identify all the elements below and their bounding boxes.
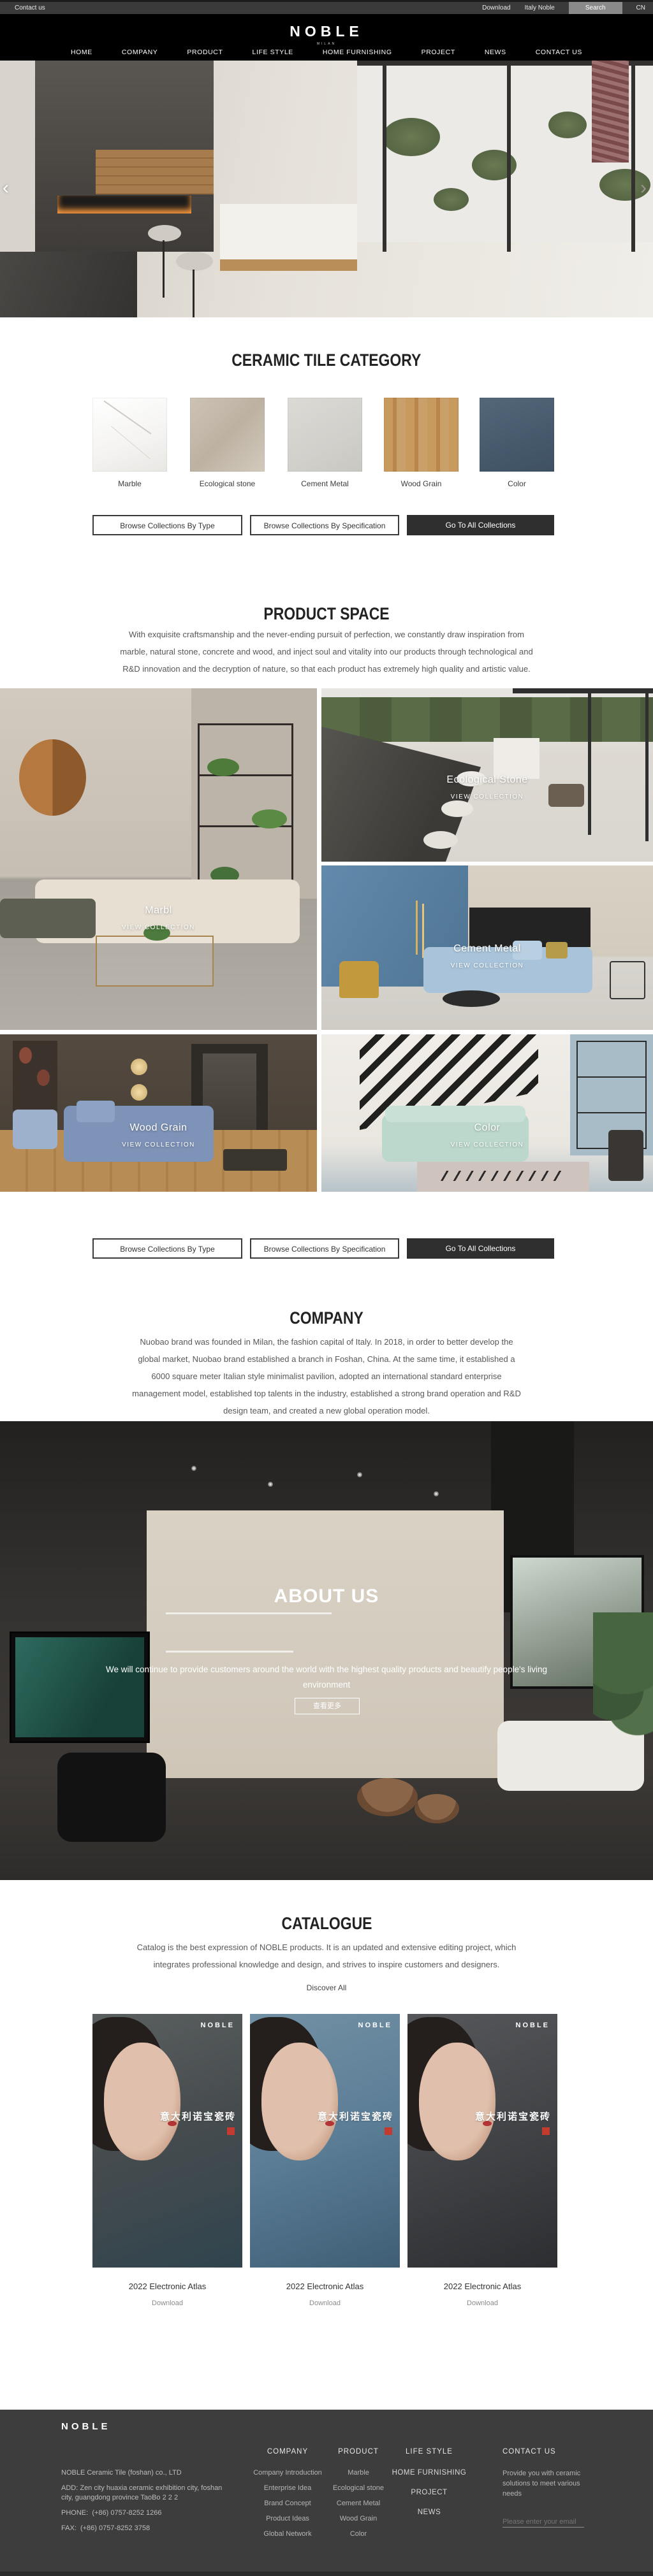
poster-seal (542, 2127, 550, 2135)
search-button[interactable]: Search (569, 2, 622, 14)
category-section-title: CERAMIC TILE CATEGORY (0, 351, 653, 370)
footer-link-company-introduction[interactable]: Company Introduction (246, 2468, 329, 2478)
carousel-prev-arrow[interactable]: ‹ (3, 178, 9, 198)
category-swatch-ecological-stone[interactable] (190, 398, 265, 472)
download-link[interactable]: Download (482, 4, 510, 11)
hero-carousel: ‹ › (0, 61, 653, 317)
browse-by-type-button[interactable]: Browse Collections By Type (92, 515, 242, 535)
category-swatch-wood-grain[interactable] (384, 398, 459, 472)
discover-all-link[interactable]: Discover All (0, 1983, 653, 1992)
footer-link-brand-concept[interactable]: Brand Concept (246, 2499, 329, 2508)
category-swatch-marble[interactable] (92, 398, 167, 472)
category-label-marble: Marble (92, 479, 167, 488)
about-scene-shelf (166, 1651, 293, 1653)
top-utility-bar: Contact us Download Italy Noble Search C… (0, 0, 653, 14)
atlas-title-2: 2022 Electronic Atlas (250, 2282, 400, 2291)
tile-ecological-stone-view-collection[interactable]: VIEW COLLECTION (321, 793, 653, 800)
page: Contact us Download Italy Noble Search C… (0, 0, 653, 2576)
contact-us-link[interactable]: Contact us (15, 4, 45, 11)
footer-link-global-network[interactable]: Global Network (246, 2529, 329, 2539)
hero-scene-counter (0, 252, 137, 317)
site-header: NOBLE MILAN HOME COMPANY PRODUCT LIFE ST… (0, 14, 653, 61)
atlas-title-1: 2022 Electronic Atlas (92, 2282, 242, 2291)
hero-window-mullion (383, 61, 386, 252)
hero-scene-island (220, 204, 357, 271)
tile-color[interactable]: Color VIEW COLLECTION (321, 1034, 653, 1192)
tile-marble-view-collection[interactable]: VIEW COLLECTION (0, 924, 317, 931)
poster-title: 意大利诺宝瓷砖 (475, 2109, 551, 2123)
about-us-section: ABOUT US We will continue to provide cus… (0, 1421, 653, 1880)
footer-address-label: ADD: (61, 2484, 78, 2492)
footer-phone-label: PHONE: (61, 2509, 88, 2517)
footer-company-links: Company Introduction Enterprise Idea Bra… (246, 2468, 329, 2545)
footer-heading-life-style[interactable]: LIFE STYLE (390, 2448, 468, 2456)
browse-by-type-button-2[interactable]: Browse Collections By Type (92, 1238, 242, 1259)
catalogue-paragraph: Catalog is the best expression of NOBLE … (122, 1939, 531, 1973)
tile-ecological-stone[interactable]: Ecological Stone VIEW COLLECTION (321, 688, 653, 862)
footer-link-color[interactable]: Color (319, 2529, 398, 2539)
hero-scene-stool-leg (163, 240, 165, 298)
category-label-color: Color (480, 479, 554, 488)
nav-life-style[interactable]: LIFE STYLE (253, 48, 293, 56)
poster-title: 意大利诺宝瓷砖 (160, 2109, 236, 2123)
tile-color-view-collection[interactable]: VIEW COLLECTION (321, 1141, 653, 1148)
company-paragraph: Nuobao brand was founded in Milan, the f… (129, 1333, 524, 1419)
hero-scene-stool (148, 225, 181, 242)
catalogue-poster-1[interactable]: NOBLE 意大利诺宝瓷砖 (92, 2014, 242, 2268)
nav-news[interactable]: NEWS (485, 48, 506, 56)
footer-phone: (+86) 0757-8252 1266 (92, 2509, 161, 2517)
footer-contact-block: Provide you with ceramic solutions to me… (503, 2468, 592, 2528)
tile-ecological-stone-name: Ecological Stone (321, 774, 653, 786)
hero-scene-wall (0, 61, 35, 277)
category-label-wood-grain: Wood Grain (384, 479, 459, 488)
nav-contact-us[interactable]: CONTACT US (536, 48, 582, 56)
product-space-title: PRODUCT SPACE (0, 604, 653, 624)
footer-bottom-strip (0, 2572, 653, 2576)
footer-link-product-ideas[interactable]: Product Ideas (246, 2514, 329, 2524)
footer-link-home-furnishing[interactable]: HOME FURNISHING (385, 2468, 473, 2478)
about-scene-table (415, 1794, 459, 1823)
footer-lifestyle-links: HOME FURNISHING PROJECT NEWS (385, 2468, 473, 2528)
atlas-title-3: 2022 Electronic Atlas (407, 2282, 557, 2291)
carousel-next-arrow[interactable]: › (640, 178, 647, 198)
brand-logo-subtitle: MILAN (0, 42, 653, 46)
catalogue-poster-2[interactable]: NOBLE 意大利诺宝瓷砖 (250, 2014, 400, 2268)
hero-scene-textile (592, 61, 629, 163)
about-us-title: ABOUT US (0, 1586, 653, 1607)
footer-link-news[interactable]: NEWS (385, 2508, 473, 2517)
main-nav: HOME COMPANY PRODUCT LIFE STYLE HOME FUR… (0, 48, 653, 56)
go-to-all-collections-button-2[interactable]: Go To All Collections (407, 1238, 554, 1259)
hero-scene-stool-leg (193, 270, 194, 317)
newsletter-email-input[interactable] (503, 2517, 584, 2528)
poster-seal (385, 2127, 392, 2135)
footer-company-name: NOBLE Ceramic Tile (foshan) co., LTD (61, 2468, 230, 2478)
about-scene-chair (57, 1753, 166, 1842)
atlas-download-1[interactable]: Download (92, 2299, 242, 2307)
nav-project[interactable]: PROJECT (422, 48, 455, 56)
footer-heading-product[interactable]: PRODUCT (319, 2448, 398, 2456)
tile-marble-name: Marbl (0, 905, 317, 916)
about-us-paragraph: We will continue to provide customers ar… (103, 1662, 550, 1693)
italy-noble-link[interactable]: Italy Noble (525, 4, 555, 11)
footer-heading-contact-us[interactable]: CONTACT US (503, 2448, 556, 2456)
tile-cement-metal-view-collection[interactable]: VIEW COLLECTION (321, 962, 653, 969)
tile-wood-grain-name: Wood Grain (0, 1122, 317, 1134)
tile-cement-metal-name: Cement Metal (321, 943, 653, 955)
category-swatch-cement-metal[interactable] (288, 398, 362, 472)
about-scene-wall (147, 1510, 504, 1778)
footer-heading-company[interactable]: COMPANY (246, 2448, 329, 2456)
nav-company[interactable]: COMPANY (122, 48, 158, 56)
poster-brand: NOBLE (201, 2022, 235, 2029)
tile-color-name: Color (321, 1122, 653, 1134)
about-scene-shelf (166, 1612, 332, 1614)
hero-scene-stool (176, 252, 213, 271)
atlas-download-3[interactable]: Download (407, 2299, 557, 2307)
about-scene-table (357, 1778, 418, 1816)
about-scene-plant (593, 1612, 653, 1765)
hero-window-mullion (631, 61, 635, 252)
tile-wood-grain-view-collection[interactable]: VIEW COLLECTION (0, 1141, 317, 1148)
catalogue-section-title: CATALOGUE (0, 1914, 653, 1934)
product-space-paragraph: With exquisite craftsmanship and the nev… (116, 626, 537, 677)
browse-by-specification-button-2[interactable]: Browse Collections By Specification (250, 1238, 399, 1259)
tile-cement-metal[interactable]: Cement Metal VIEW COLLECTION (321, 865, 653, 1030)
hero-window-mullion (507, 61, 511, 252)
poster-brand: NOBLE (358, 2022, 393, 2029)
category-label-cement-metal: Cement Metal (288, 479, 362, 488)
browse-by-specification-button[interactable]: Browse Collections By Specification (250, 515, 399, 535)
footer-link-project[interactable]: PROJECT (385, 2488, 473, 2498)
brand-logo[interactable]: NOBLE (0, 23, 653, 40)
poster-title: 意大利诺宝瓷砖 (318, 2109, 393, 2123)
catalogue-poster-3[interactable]: NOBLE 意大利诺宝瓷砖 (407, 2014, 557, 2268)
site-footer: NOBLE COMPANY PRODUCT LIFE STYLE CONTACT… (0, 2410, 653, 2576)
footer-link-enterprise-idea[interactable]: Enterprise Idea (246, 2484, 329, 2493)
about-view-more-button[interactable]: 查看更多 (295, 1698, 360, 1714)
footer-company-info: NOBLE Ceramic Tile (foshan) co., LTD ADD… (61, 2468, 230, 2539)
category-swatch-color[interactable] (480, 398, 554, 472)
footer-address: Zen city huaxia ceramic exhibition city,… (61, 2484, 222, 2501)
poster-seal (227, 2127, 235, 2135)
footer-contact-blurb: Provide you with ceramic solutions to me… (503, 2468, 592, 2499)
tile-wood-grain[interactable]: Wood Grain VIEW COLLECTION (0, 1034, 317, 1192)
footer-fax: (+86) 0757-8252 3758 (80, 2524, 150, 2532)
tile-marble[interactable]: Marbl VIEW COLLECTION (0, 688, 317, 1030)
go-to-all-collections-button[interactable]: Go To All Collections (407, 515, 554, 535)
category-label-ecological-stone: Ecological stone (190, 479, 265, 488)
hero-scene-fireplace (57, 196, 191, 213)
atlas-download-2[interactable]: Download (250, 2299, 400, 2307)
nav-product[interactable]: PRODUCT (187, 48, 223, 56)
nav-home[interactable]: HOME (71, 48, 92, 56)
company-section-title: COMPANY (0, 1308, 653, 1328)
language-toggle-cn[interactable]: CN (636, 4, 645, 11)
nav-home-furnishing[interactable]: HOME FURNISHING (323, 48, 392, 56)
hero-scene-wood (96, 150, 214, 194)
poster-brand: NOBLE (516, 2022, 550, 2029)
footer-logo: NOBLE (61, 2421, 111, 2432)
footer-fax-label: FAX: (61, 2524, 77, 2532)
